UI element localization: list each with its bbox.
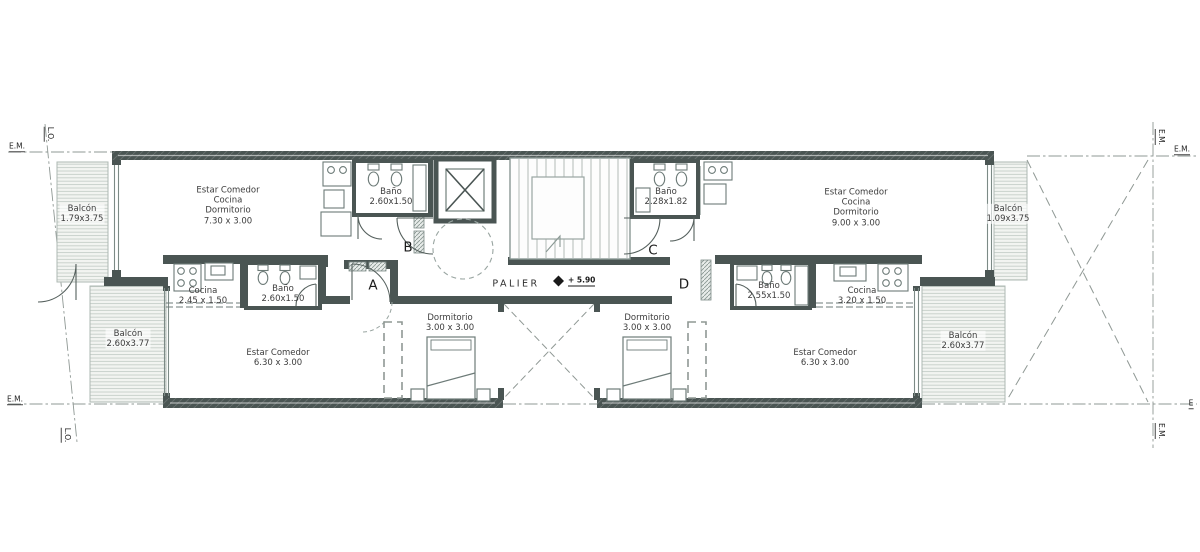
door-tag-b: B [403,241,412,255]
site-label-em-top-right-vertical: E.M. [1155,129,1165,145]
site-label-em-top-right: E.M. [1174,145,1190,155]
room-label-kitchen-right: Cocina 3.20 x 1.50 [838,286,886,306]
room-label-living-left: Estar Comedor 6.30 x 3.00 [246,348,309,368]
room-label-balcony-upper-right: Balcón 1.09x3.75 [986,204,1031,224]
palier-label: PALIER [492,279,539,290]
room-label-living-right: Estar Comedor 6.30 x 3.00 [793,348,856,368]
patio-shaft [504,304,594,398]
room-label-balcony-lower-right: Balcón 2.60x3.77 [941,331,986,351]
site-label-em-bottom-right-vertical: E.M. [1155,423,1165,439]
floor-plan: Estar Comedor Cocina Dormitorio 7.30 x 3… [0,0,1200,552]
room-label-bath-top-left: Baño 2.60x1.50 [370,187,413,207]
site-label-em-bottom-left: E.M. [7,395,23,405]
turning-circle [433,219,493,279]
room-label-unit-top-left: Estar Comedor Cocina Dormitorio 7.30 x 3… [196,186,259,227]
elevator-icon [436,159,494,221]
room-label-unit-top-right: Estar Comedor Cocina Dormitorio 9.00 x 3… [824,188,887,229]
stairs-icon [510,158,630,259]
room-label-kitchen-left: Cocina 2.45 x 1.50 [179,286,227,306]
door-tag-d: D [679,278,689,292]
room-label-dorm-right: Dormitorio 3.00 x 3.00 [623,313,671,333]
floorplan-drawing [0,0,1200,552]
site-label-em-top-left: E.M. [9,142,25,152]
room-label-bath-mid-right: Baño 2.55x1.50 [748,281,791,301]
site-label-lo-top-left: L.O. [44,127,54,142]
site-label-e-bottom-right: E [1189,399,1194,409]
room-label-bath-top-right: Baño 2.28x1.82 [645,187,688,207]
room-label-balcony-lower-left: Balcón 2.60x3.77 [106,329,151,349]
room-label-bath-mid-left: Baño 2.60x1.50 [262,284,305,304]
door-tag-c: C [648,244,657,258]
lot-cross-lines [1007,160,1148,402]
site-label-lo-bottom-left: L.O. [61,428,71,443]
level-mark-label: + 5.90 [568,276,595,287]
door-tag-a: A [368,279,377,293]
room-label-balcony-upper-left: Balcón 1.79x3.75 [60,204,105,224]
room-label-dorm-left: Dormitorio 3.00 x 3.00 [426,313,474,333]
entry-dashed-arc [362,302,392,332]
level-mark-icon [553,276,564,287]
